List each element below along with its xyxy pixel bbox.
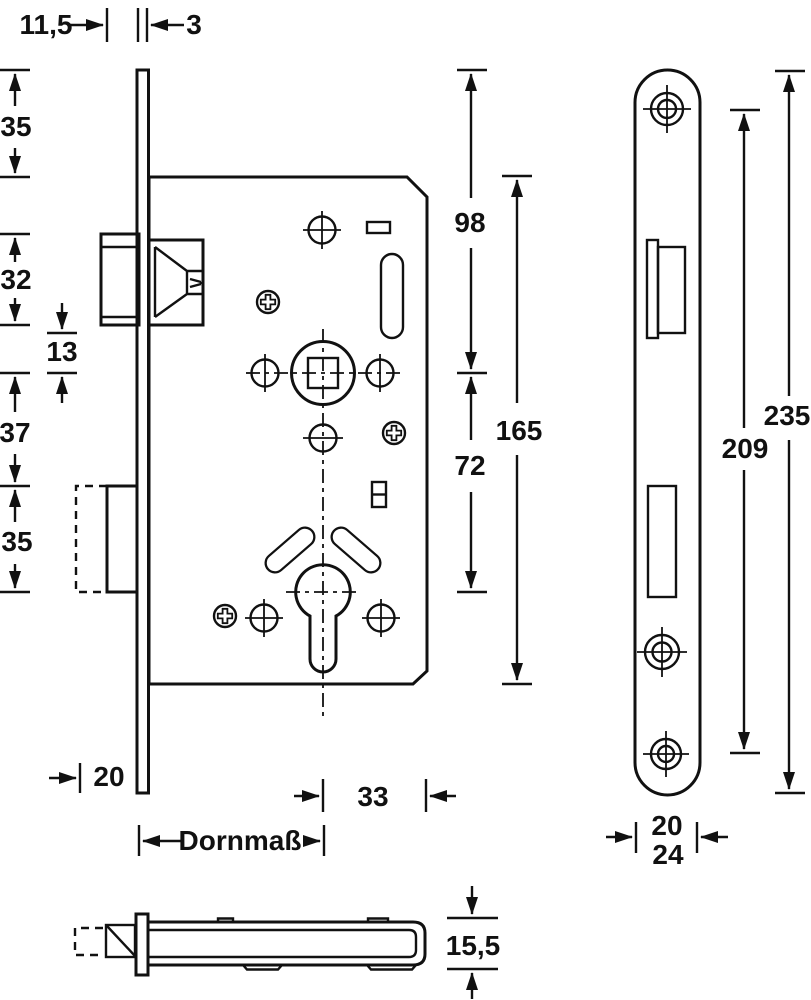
side-case [148,919,425,970]
latch-bolt [101,234,203,325]
technical-drawing-canvas: 11,5 3 35 32 13 37 35 98 165 72 20 33 Do… [0,0,811,1000]
side-view [75,914,425,975]
phillips-screw-lower [214,605,236,627]
spindle-hub [246,329,400,717]
dim-label-top-to-spindle: 98 [454,209,485,237]
deadbolt [76,486,137,592]
dim-label-case-depth: 33 [357,783,388,811]
faceplate-strip [137,70,149,793]
fixing-hole-top [303,211,341,249]
dim-label-top-to-case: 35 [0,113,31,141]
dim-label-deadbolt-height: 35 [1,528,32,556]
faceplate-deadbolt-cutout [648,486,676,597]
slot-top-right [367,222,390,233]
dim-label-latch-offset: 13 [46,338,77,366]
divided-slot [372,482,386,507]
dim-label-spindle-to-cylinder: 72 [454,452,485,480]
dim-label-case-height: 165 [496,417,543,445]
faceplate-screw-top [643,85,691,133]
fixing-hole-bottom-right [362,599,400,637]
faceplate-latch-cutout [647,240,685,338]
dim-label-latch-to-deadbolt: 37 [0,419,31,447]
lock-case-view [76,70,427,793]
side-faceplate [136,914,148,975]
faceplate-outline [635,70,700,795]
dim-label-latch-height: 32 [0,266,31,294]
dim-label-backset-value: 20 [93,763,124,791]
dim-label-screw-spacing: 209 [722,435,769,463]
dim-label-faceplate-width-narrow: 20 [651,812,682,840]
phillips-screw-upper [257,291,279,313]
faceplate-front-view [635,70,700,795]
fixing-hole-bottom-left [245,599,283,637]
dim-label-faceplate-width-wide: 24 [652,841,683,869]
dim-label-backset-name: Dornmaß [179,827,302,855]
side-deadbolt-dashed [75,928,103,955]
dimension-annotations [0,8,805,999]
dim-label-faceplate-length: 235 [764,402,811,430]
dim-label-faceplate-thickness: 3 [186,11,202,39]
lock-drawing-svg [0,0,811,1000]
side-latch [106,925,135,957]
oval-slot-right [381,254,403,338]
dim-label-case-thickness: 15,5 [446,932,501,960]
lock-case-outline [149,177,427,684]
phillips-screw-right [383,422,405,444]
faceplate-screw-bottom [643,731,689,777]
dim-label-latch-protrusion: 11,5 [20,11,73,39]
faceplate-screw-middle [637,627,687,677]
